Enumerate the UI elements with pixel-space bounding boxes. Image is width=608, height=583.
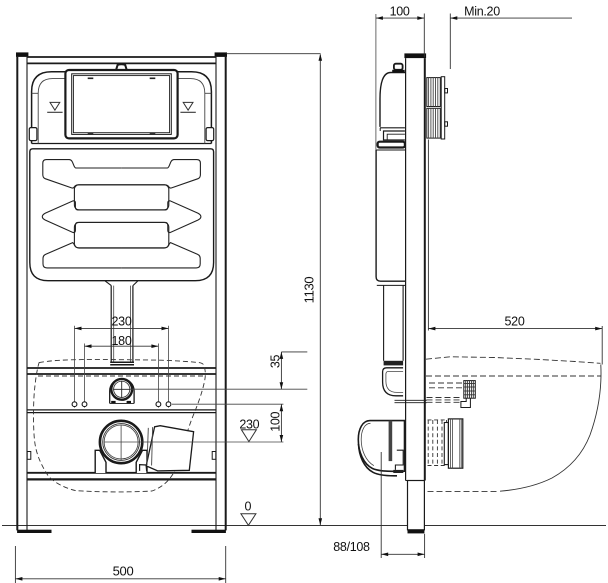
svg-text:Min.20: Min.20 (464, 4, 500, 18)
svg-text:1130: 1130 (302, 277, 317, 304)
svg-text:500: 500 (113, 563, 134, 578)
svg-text:0: 0 (244, 500, 251, 514)
svg-text:100: 100 (390, 4, 410, 18)
svg-text:230: 230 (239, 417, 259, 431)
svg-text:35: 35 (269, 355, 283, 369)
svg-text:230: 230 (112, 315, 132, 329)
svg-text:180: 180 (112, 334, 132, 348)
svg-text:100: 100 (269, 411, 283, 431)
svg-text:88/108: 88/108 (333, 540, 370, 554)
svg-text:520: 520 (505, 314, 525, 328)
